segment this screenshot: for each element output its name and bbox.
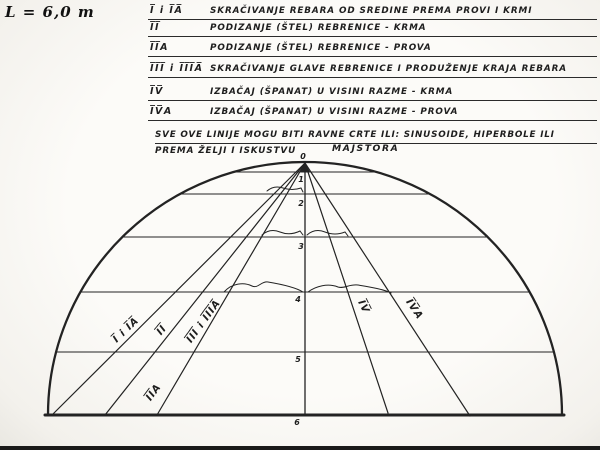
- tick-5: 5: [295, 355, 301, 364]
- tick-6: 6: [294, 418, 300, 427]
- legend-numeral: I̅ i I̅A̅: [150, 5, 183, 16]
- legend-numeral: I̅I̅I̅ i I̅I̅I̅A̅: [150, 63, 203, 74]
- ray-label-iii-iiia: I̅I̅I̅ i I̅I̅I̅A̅: [183, 297, 223, 346]
- ray-label-iv: I̅V̅: [355, 297, 373, 315]
- brace-level4-left: [224, 282, 303, 292]
- legend-row: I̅I̅A PODIZANJE (ŠTEL) REBRENICE - PROVA: [148, 42, 597, 57]
- scan-edge-strip: [0, 446, 600, 450]
- ray-ii: [105, 163, 305, 415]
- legend-row: I̅I̅ PODIZANJE (ŠTEL) REBRENICE - KRMA: [148, 22, 597, 37]
- tick-3: 3: [298, 242, 304, 251]
- scale-label: L = 6,0 m: [5, 3, 95, 21]
- legend-numeral: I̅V̅A: [150, 106, 173, 117]
- ray-label-ii: I̅I̅: [153, 321, 170, 337]
- legend-description: SKRAČIVANJE GLAVE REBRENICE I PRODUŽENJE…: [210, 64, 567, 74]
- note-line-2: PREMA ŽELJI I ISKUSTVU: [155, 146, 296, 156]
- legend-numeral: I̅I̅A: [150, 42, 169, 53]
- tick-1: 1: [298, 175, 304, 184]
- scanned-diagram-page: 0 1 2 3 4 5 6 I̅ i I̅A̅ I̅I̅ I̅I̅I̅ i I̅…: [0, 0, 600, 450]
- legend-description: SKRAČIVANJE REBARA OD SREDINE PREMA PROV…: [210, 6, 532, 16]
- tick-0: 0: [300, 152, 306, 161]
- ray-label-iia: I̅I̅A: [142, 381, 163, 404]
- ray-label-i-ia: I̅ i I̅A̅: [110, 314, 142, 345]
- ray-iva: [305, 163, 470, 416]
- legend-description: IZBAČAJ (ŠPANAT) U VISINI RAZME - PROVA: [210, 107, 458, 117]
- brace-level3-left: [262, 231, 303, 235]
- legend-numeral: I̅I̅: [150, 22, 160, 33]
- tick-4: 4: [294, 295, 301, 304]
- ray-i-ia: [52, 163, 305, 415]
- note-line-1: SVE OVE LINIJE MOGU BITI RAVNE CRTE ILI:…: [155, 130, 597, 144]
- legend-description: IZBAČAJ (ŠPANAT) U VISINI RAZME - KRMA: [210, 87, 453, 97]
- legend-row: I̅V̅A IZBAČAJ (ŠPANAT) U VISINI RAZME - …: [148, 106, 597, 121]
- legend-row: I̅I̅I̅ i I̅I̅I̅A̅ SKRAČIVANJE GLAVE REBR…: [148, 63, 597, 78]
- note-line-2-continued: MAJSTORA: [332, 143, 399, 154]
- legend-row: I̅ i I̅A̅ SKRAČIVANJE REBARA OD SREDINE …: [148, 5, 597, 20]
- legend-row: I̅V̅ IZBAČAJ (ŠPANAT) U VISINI RAZME - K…: [148, 86, 597, 101]
- tick-2: 2: [298, 199, 304, 208]
- legend-numeral: I̅V̅: [150, 86, 164, 97]
- legend-description: PODIZANJE (ŠTEL) REBRENICE - KRMA: [210, 23, 426, 33]
- legend-description: PODIZANJE (ŠTEL) REBRENICE - PROVA: [210, 43, 432, 53]
